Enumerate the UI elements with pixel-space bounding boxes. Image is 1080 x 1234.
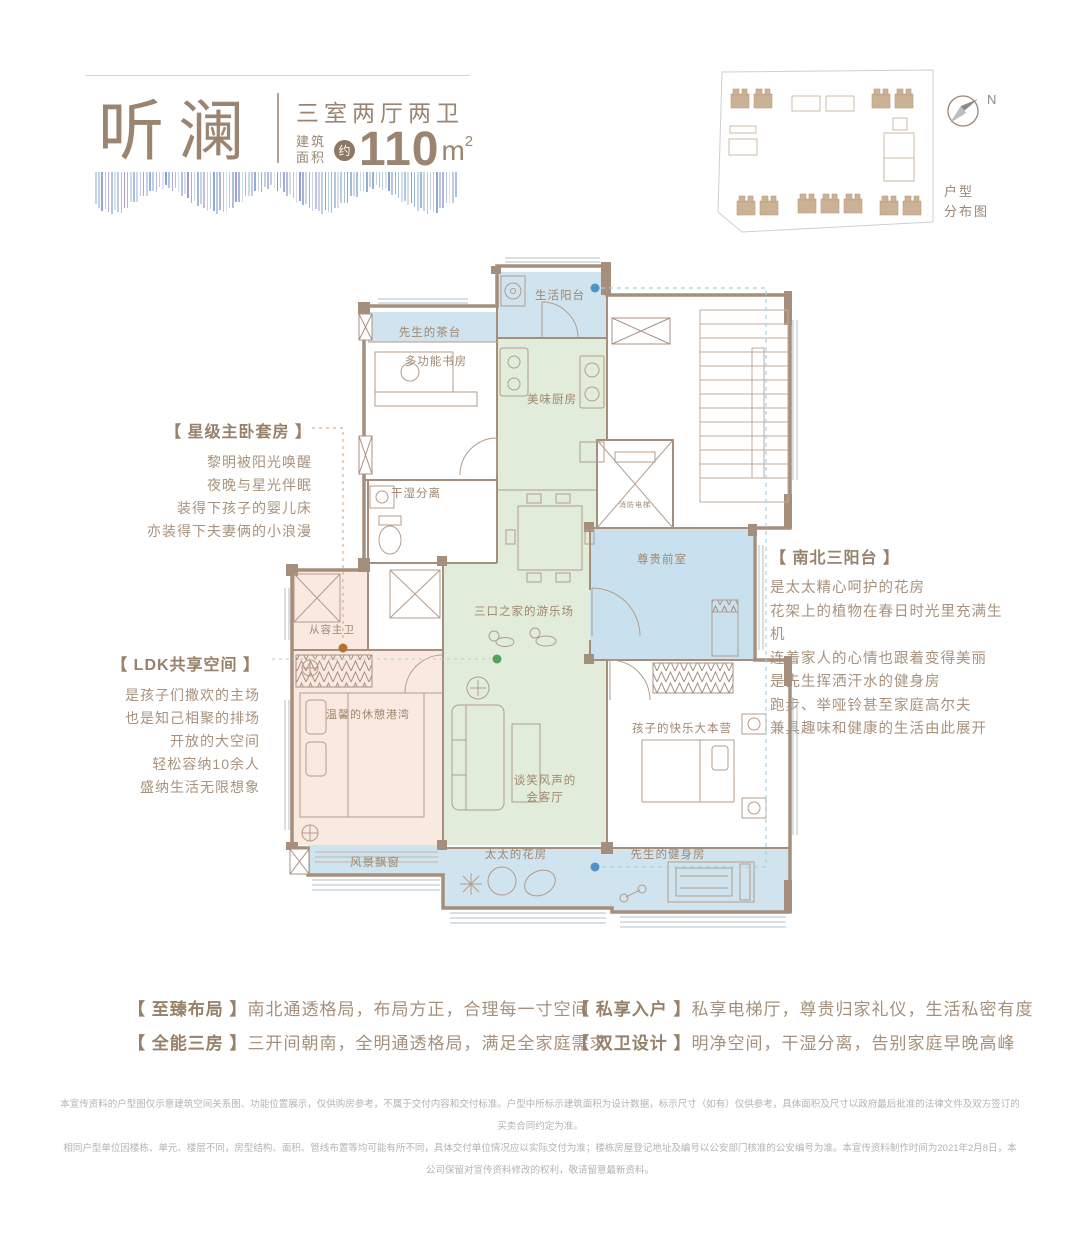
wave-bar (455, 172, 457, 197)
feature-tag: 【 至臻布局 】 (128, 1000, 247, 1019)
wave-bar (283, 172, 285, 192)
wave-bar (398, 172, 400, 198)
annotation-line: 也是知己相聚的排场 (92, 707, 260, 730)
wave-bar (162, 172, 164, 189)
wave-bar (245, 172, 247, 196)
wave-bar (200, 172, 202, 204)
wave-bar (382, 172, 384, 190)
wave-bar (277, 172, 279, 191)
north-label: N (987, 92, 996, 107)
wave-bar (175, 172, 177, 188)
room-label-kitchen: 美味厨房 (527, 392, 577, 406)
room-label-flower-room: 太太的花房 (485, 847, 548, 861)
wave-bar (391, 172, 393, 195)
dot-master-suite (339, 644, 348, 653)
wave-bar (325, 172, 327, 210)
wave-bar (363, 172, 365, 191)
wave-bar (401, 172, 403, 202)
kids-closet-icon (653, 663, 733, 693)
wave-bar (340, 172, 342, 203)
wave-bar (114, 172, 116, 210)
siteplan-caption-2: 分布图 (944, 204, 989, 219)
wave-bar (168, 172, 170, 188)
disclaimer: 本宣传资料的户型图仅示意建筑空间关系图、功能位置展示，仅供购房参考，不属于交付内… (60, 1094, 1020, 1182)
wave-bar (95, 172, 97, 204)
life-balcony-area (497, 272, 607, 338)
wave-bar (197, 172, 199, 206)
room-label-master-bath: 从容主卫 (309, 623, 355, 636)
wave-bar (302, 172, 304, 205)
feature-layout: 【 至臻布局 】南北通透格局，布局方正，合理每一寸空间 (128, 995, 589, 1020)
wave-bar (238, 172, 240, 202)
wave-bar (353, 172, 355, 196)
wave-bar (143, 172, 145, 196)
wave-bar (334, 172, 336, 208)
wave-bar (404, 172, 406, 201)
feature-text: 明净空间，干湿分离，告别家庭早晚高峰 (691, 1034, 1015, 1053)
room-label-living-1: 谈笑风声的 (514, 773, 577, 787)
wave-bar (207, 172, 209, 211)
area-row: 建筑面积 约 110 m2 (296, 127, 473, 173)
wave-bar (337, 172, 339, 208)
wave-bar (274, 172, 276, 188)
wave-bar (270, 172, 272, 185)
wave-bar (226, 172, 228, 213)
disclaimer-line-2: 相同户型单位因楼栋、单元、楼层不同，房型结构、面积、管线布置等均可能有所不同，具… (60, 1138, 1020, 1182)
wave-bar (315, 172, 317, 209)
wave-bar (289, 172, 291, 194)
wave-bar (411, 172, 413, 203)
room-label-playground: 三口之家的游乐场 (474, 604, 574, 618)
annotation-line: 开放的大空间 (92, 730, 260, 753)
wave-bar (127, 172, 129, 208)
wave-bar (156, 172, 158, 192)
annotation-line: 是孩子们撒欢的主场 (92, 684, 260, 707)
annotation-line: 跑步、举哑铃甚至家庭高尔夫 (770, 695, 1010, 719)
wave-bar (439, 172, 441, 208)
wave-bar (417, 172, 419, 211)
annotation-heading: 【 LDK共享空间 】 (92, 651, 260, 675)
approx-badge: 约 (334, 140, 355, 161)
wave-bar (331, 172, 333, 213)
ldk-area (443, 338, 607, 845)
area-unit: m2 (441, 133, 473, 167)
wardrobe-icon (296, 655, 372, 687)
annotation-ldk: 【 LDK共享空间 】 是孩子们撒欢的主场 也是知己相聚的排场 开放的大空间 轻… (92, 651, 260, 799)
wave-bar (360, 172, 362, 191)
wave-bar (347, 172, 349, 203)
wave-bar (105, 172, 107, 209)
wave-bar (229, 172, 231, 208)
annotation-line: 轻松容纳10余人 (92, 753, 260, 776)
wave-bar (376, 172, 378, 185)
wave-bar (194, 172, 196, 201)
wave-bar (423, 172, 425, 211)
room-label-foyer: 尊贵前室 (637, 552, 687, 566)
wave-bar (203, 172, 205, 208)
wave-bar (318, 172, 320, 211)
wave-bar (293, 172, 295, 198)
room-label-bay-window: 风景飘窗 (350, 855, 400, 869)
page-title: 听澜 (98, 78, 258, 174)
wave-bar (117, 172, 119, 212)
wave-bar (356, 172, 358, 197)
wave-bar (258, 172, 260, 191)
wave-bar (248, 172, 250, 196)
annotation-heading: 【 南北三阳台 】 (770, 544, 1010, 568)
wave-bar (111, 172, 113, 214)
wave-bar (312, 172, 314, 211)
wave-bar (140, 172, 142, 196)
feature-rooms: 【 全能三房 】三开间朝南，全明通透格局，满足全家庭需求 (128, 1029, 607, 1054)
annotation-line: 兼具趣味和健康的生活由此展开 (770, 718, 1010, 742)
wave-bar (388, 172, 390, 191)
wave-bar (321, 172, 323, 214)
header-rule (85, 75, 470, 76)
wave-bar (213, 172, 215, 211)
wave-bar (305, 172, 307, 204)
annotation-line: 盛纳生活无限想象 (92, 776, 260, 799)
wave-bar (420, 172, 422, 208)
wave-bar (442, 172, 444, 208)
dot-balcony-south (591, 863, 600, 872)
dot-balcony-north (591, 284, 600, 293)
wave-bar (136, 172, 138, 202)
wave-bar (350, 172, 352, 196)
wave-bar (267, 172, 269, 189)
wave-bar (232, 172, 234, 208)
feature-text: 三开间朝南，全明通透格局，满足全家庭需求 (247, 1034, 607, 1053)
wave-bar (372, 172, 374, 189)
wave-bar (414, 172, 416, 207)
wave-bar (184, 172, 186, 194)
wave-bar (178, 172, 180, 192)
wave-bar (449, 172, 451, 203)
wave-bar (366, 172, 368, 192)
feature-tag: 【 全能三房 】 (128, 1034, 247, 1053)
feature-entry: 【 私享入户 】私享电梯厅，尊贵归家礼仪，生活私密有度 (572, 995, 1033, 1020)
feature-text: 南北通透格局，布局方正，合理每一寸空间 (247, 1000, 589, 1019)
annotation-line: 连着家人的心情也跟着变得美丽 (770, 648, 1010, 672)
room-label-life-balcony: 生活阳台 (535, 288, 585, 302)
wave-bar (296, 172, 298, 203)
wave-bar (427, 172, 429, 214)
wave-bar (146, 172, 148, 196)
annotation-line: 花架上的植物在春日时光里充满生机 (770, 601, 1010, 648)
wave-bar (395, 172, 397, 194)
wave-bar (254, 172, 256, 191)
room-label-gym: 先生的健身房 (631, 847, 706, 861)
annotation-line: 是先生挥洒汗水的健身房 (770, 671, 1010, 695)
wave-bar (446, 172, 448, 203)
wave-bar (191, 172, 193, 203)
title-divider (277, 93, 279, 163)
room-label-tea-bar: 先生的茶台 (399, 325, 462, 339)
wave-bar (152, 172, 154, 191)
wave-bar (165, 172, 167, 185)
wave-bar (369, 172, 371, 187)
elevator-shaft (597, 440, 673, 528)
compass-icon: N (948, 92, 996, 126)
wave-bar (286, 172, 288, 196)
wave-bar (124, 172, 126, 208)
room-label-bath2: 干湿分离 (391, 486, 441, 500)
wave-bar (436, 172, 438, 213)
wave-bar (121, 172, 123, 213)
wave-bar (223, 172, 225, 212)
wave-decoration (95, 172, 465, 222)
foyer-area (590, 528, 753, 660)
wave-bar (309, 172, 311, 208)
feature-tag: 【 私享入户 】 (572, 1000, 691, 1019)
area-prefix: 建筑面积 (296, 134, 326, 166)
site-plan: N 户型 分布图 (705, 52, 1015, 237)
wave-bar (433, 172, 435, 212)
wave-bar (210, 172, 212, 209)
siteplan-caption-1: 户型 (944, 184, 974, 199)
wave-bar (235, 172, 237, 202)
room-label-study: 多功能书房 (405, 354, 468, 368)
wave-bar (407, 172, 409, 205)
wave-bar (130, 172, 132, 202)
wave-bar (328, 172, 330, 212)
feature-bath: 【 双卫设计 】明净空间，干湿分离，告别家庭早晚高峰 (572, 1029, 1015, 1054)
wave-bar (452, 172, 454, 203)
master-bath-area (292, 570, 368, 650)
wave-bar (430, 172, 432, 210)
wave-bar (216, 172, 218, 214)
wave-bar (159, 172, 161, 187)
wave-bar (181, 172, 183, 196)
wave-bar (385, 172, 387, 188)
stairs (700, 310, 788, 502)
wave-bar (172, 172, 174, 191)
room-label-elevator: 消防电梯 (619, 500, 651, 509)
room-label-master-bedroom: 温馨的休憩港湾 (326, 707, 410, 721)
feature-tag: 【 双卫设计 】 (572, 1034, 691, 1053)
room-label-kids-room: 孩子的快乐大本营 (632, 721, 732, 735)
wave-bar (219, 172, 221, 210)
wave-bar (379, 172, 381, 188)
wave-bar (133, 172, 135, 202)
floor-plan: 生活阳台 先生的茶台 多功能书房 美味厨房 干湿分离 消防电梯 尊贵前室 从容主… (270, 255, 800, 945)
annotation-balconies: 【 南北三阳台 】 是太太精心呵护的花房 花架上的植物在春日时光里充满生机 连着… (770, 544, 1010, 742)
wave-bar (280, 172, 282, 188)
area-value: 110 (359, 127, 439, 173)
annotation-line: 是太太精心呵护的花房 (770, 577, 1010, 601)
feature-text: 私享电梯厅，尊贵归家礼仪，生活私密有度 (691, 1000, 1033, 1019)
room-label-living-2: 会客厅 (526, 790, 564, 804)
wave-bar (344, 172, 346, 203)
wave-bar (251, 172, 253, 196)
wave-bar (101, 172, 103, 211)
wave-bar (264, 172, 266, 187)
wave-bar (149, 172, 151, 191)
wave-bar (261, 172, 263, 192)
wave-bar (108, 172, 110, 212)
outline-buildings (729, 96, 914, 181)
disclaimer-line-1: 本宣传资料的户型图仅示意建筑空间关系图、功能位置展示，仅供购房参考，不属于交付内… (60, 1094, 1020, 1138)
wave-bar (242, 172, 244, 202)
wave-bar (187, 172, 189, 198)
wave-bar (98, 172, 100, 208)
dot-ldk (493, 655, 502, 664)
wave-bar (299, 172, 301, 201)
